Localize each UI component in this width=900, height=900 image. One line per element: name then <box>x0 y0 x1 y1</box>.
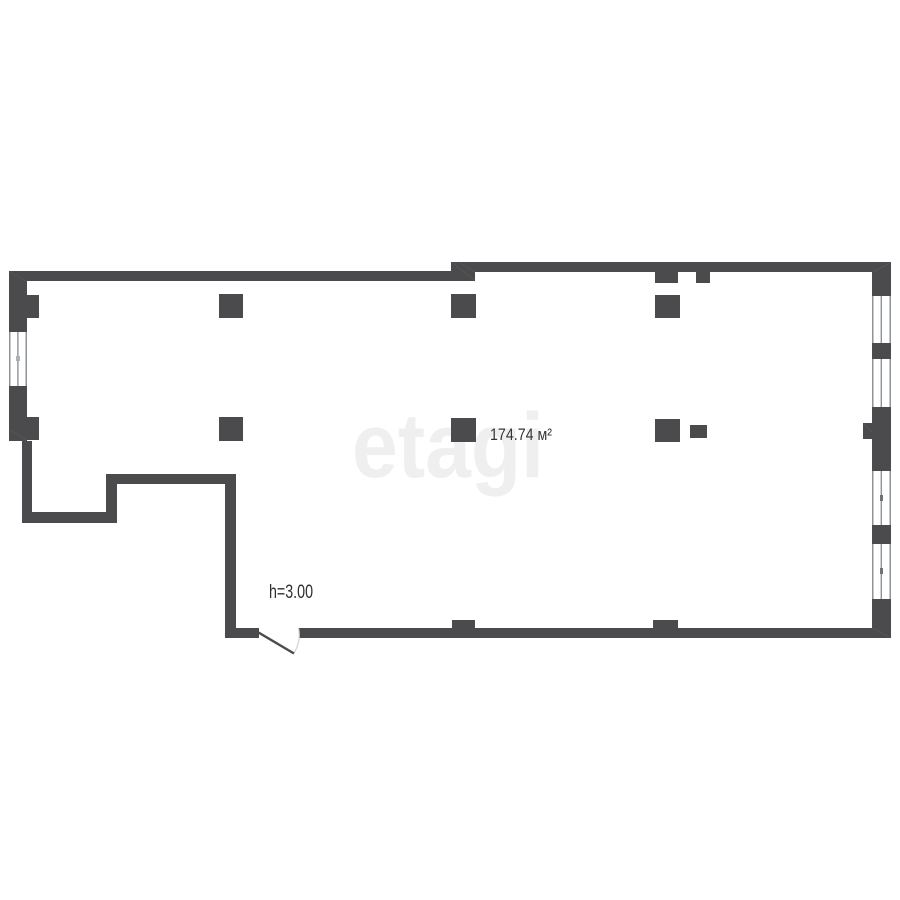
svg-text:h=3.00: h=3.00 <box>269 582 313 603</box>
svg-text:etagi: etagi <box>352 395 544 497</box>
svg-text:174.74 м²: 174.74 м² <box>490 425 552 444</box>
